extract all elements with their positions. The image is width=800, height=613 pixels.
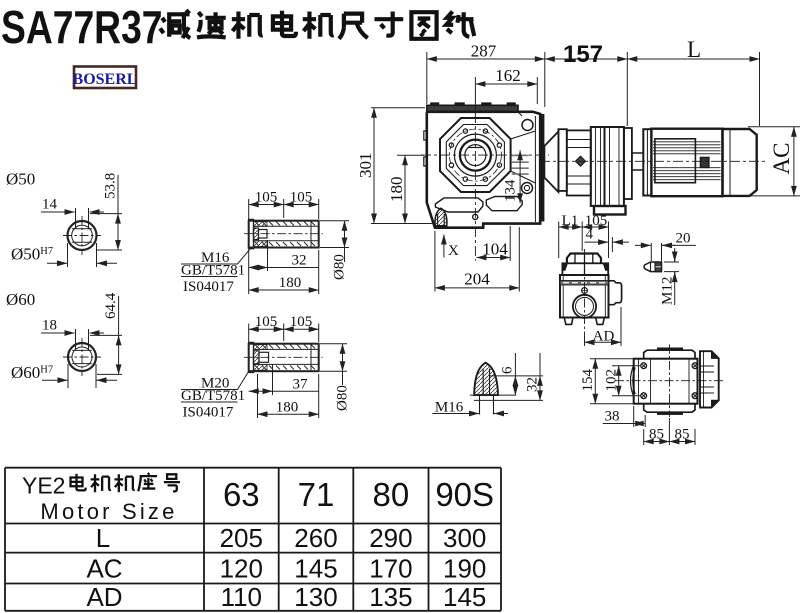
svg-text:M12: M12: [660, 277, 676, 305]
svg-text:GB/T5781: GB/T5781: [181, 263, 245, 279]
svg-text:157: 157: [563, 41, 603, 68]
svg-text:18: 18: [42, 318, 57, 334]
svg-text:205: 205: [220, 523, 263, 553]
svg-text:L1: L1: [562, 213, 579, 229]
svg-text:105: 105: [290, 190, 313, 206]
svg-text:180: 180: [387, 177, 406, 203]
svg-text:X: X: [448, 243, 459, 259]
svg-text:130: 130: [294, 582, 337, 612]
svg-text:38: 38: [605, 409, 620, 425]
svg-text:145: 145: [443, 582, 486, 612]
svg-text:Ø80: Ø80: [335, 385, 351, 411]
svg-text:Ø50: Ø50: [6, 170, 35, 189]
svg-text:260: 260: [294, 523, 337, 553]
svg-text:IS04017: IS04017: [183, 279, 234, 295]
svg-text:290: 290: [369, 523, 412, 553]
svg-text:134: 134: [503, 179, 519, 202]
svg-text:85: 85: [649, 427, 664, 443]
svg-text:6: 6: [500, 366, 516, 374]
svg-text:85: 85: [675, 427, 690, 443]
svg-text:BOSERL: BOSERL: [73, 71, 138, 88]
svg-text:170: 170: [369, 553, 412, 583]
svg-text:80: 80: [373, 476, 410, 513]
svg-text:20: 20: [676, 231, 691, 247]
svg-text:L: L: [96, 523, 110, 553]
svg-text:287: 287: [471, 42, 497, 61]
svg-text:YE2: YE2: [22, 473, 65, 499]
svg-text:37: 37: [293, 377, 309, 393]
svg-text:AD: AD: [593, 329, 615, 345]
svg-text:301: 301: [356, 153, 375, 179]
svg-text:63: 63: [223, 476, 260, 513]
svg-text:Ø80: Ø80: [332, 254, 348, 280]
svg-text:Motor Size: Motor Size: [40, 499, 177, 524]
svg-text:71: 71: [298, 476, 335, 513]
svg-text:AD: AD: [86, 582, 122, 612]
svg-text:53.8: 53.8: [103, 173, 119, 199]
svg-text:14: 14: [42, 197, 58, 213]
svg-text:GB/T5781: GB/T5781: [181, 388, 245, 404]
svg-text:145: 145: [294, 553, 337, 583]
svg-text:300: 300: [443, 523, 486, 553]
svg-text:32: 32: [525, 377, 541, 392]
svg-text:180: 180: [276, 400, 299, 416]
svg-text:AC: AC: [86, 553, 122, 583]
svg-text:IS04017: IS04017: [183, 405, 234, 421]
svg-text:104: 104: [482, 240, 508, 259]
svg-text:105: 105: [255, 314, 278, 330]
svg-text:102: 102: [604, 369, 620, 392]
svg-text:180: 180: [279, 275, 302, 291]
svg-text:4: 4: [586, 227, 594, 243]
svg-text:190: 190: [443, 553, 486, 583]
svg-text:Ø60: Ø60: [6, 290, 35, 309]
svg-text:AC: AC: [769, 143, 794, 175]
svg-text:135: 135: [369, 582, 412, 612]
svg-text:SA77R37: SA77R37: [1, 1, 163, 53]
svg-text:64.4: 64.4: [103, 292, 119, 319]
svg-text:120: 120: [220, 553, 263, 583]
svg-text:32: 32: [292, 253, 307, 269]
svg-text:154: 154: [580, 369, 596, 392]
svg-text:90S: 90S: [435, 476, 494, 513]
svg-text:110: 110: [221, 582, 262, 612]
svg-text:L: L: [687, 37, 701, 62]
svg-text:M16: M16: [435, 400, 464, 416]
svg-text:162: 162: [495, 66, 521, 85]
svg-text:204: 204: [464, 270, 490, 289]
svg-text:105: 105: [290, 314, 313, 330]
svg-text:105: 105: [255, 190, 278, 206]
